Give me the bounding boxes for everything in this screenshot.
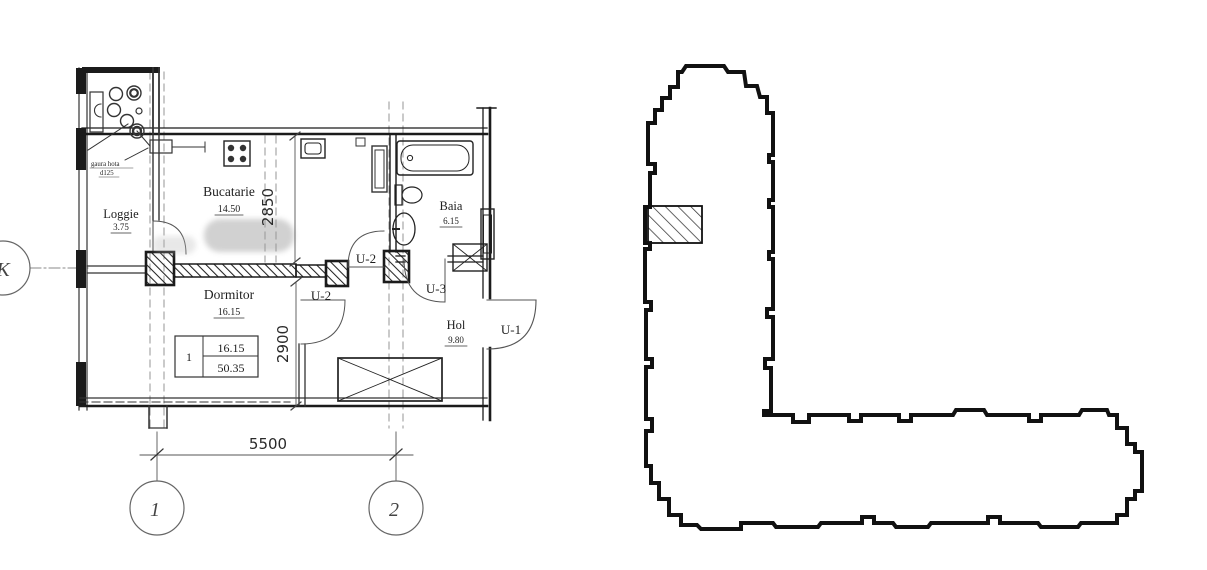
room-area-hol: 9.80 — [448, 335, 464, 345]
dim-kitchen-depth: 2850 — [259, 188, 277, 226]
building-outline — [645, 66, 1142, 529]
room-label-baia: Baia — [440, 199, 463, 213]
table-total-area: 50.35 — [218, 361, 245, 375]
dim-overall-width: 5500 — [249, 435, 287, 453]
left-wall — [76, 68, 87, 410]
door-u2-bedroom — [301, 300, 345, 344]
vent-shaft-block — [82, 67, 205, 160]
erased-watermark-blob — [204, 219, 294, 252]
dim-bedroom-depth: 2900 — [274, 325, 292, 363]
erased-watermark-blob-2 — [152, 236, 196, 254]
door-label-u2-upper: U-2 — [356, 251, 376, 266]
room-area-bucatarie: 14.50 — [218, 204, 241, 215]
note-line1: gaura hota — [91, 161, 120, 168]
wardrobe-icon — [338, 358, 442, 401]
area-table: 1 16.15 50.35 — [175, 336, 258, 377]
dim-2900: 2900 — [274, 278, 301, 410]
axis-1-label: 1 — [150, 499, 160, 521]
room-label-hol: Hol — [447, 318, 466, 332]
apartment-plan-drawing: gaura hota d125 — [0, 0, 1207, 570]
apartment-location-marker — [648, 206, 702, 243]
note-line2: d125 — [100, 170, 114, 177]
washing-machine-icon — [453, 244, 487, 271]
kitchen-sink-icon — [301, 139, 325, 158]
room-area-baia: 6.15 — [443, 216, 459, 226]
bathtub-icon — [397, 141, 473, 175]
door-label-u2-lower: U-2 — [311, 288, 331, 303]
dim-5500: 5500 — [140, 432, 413, 481]
grid-bubble-2: 2 — [369, 481, 423, 535]
page: gaura hota d125 — [0, 0, 1207, 570]
axis-k-label: K — [0, 259, 11, 281]
bottom-wall — [80, 398, 487, 428]
table-apartment-number: 1 — [186, 350, 192, 364]
grid-bubble-1: 1 — [130, 481, 184, 535]
stove-icon — [224, 141, 250, 166]
washbasin-icon — [393, 213, 415, 245]
toilet-icon — [395, 185, 422, 205]
floor-plan: gaura hota d125 — [0, 67, 536, 535]
table-room-area: 16.15 — [218, 341, 245, 355]
door-label-u3: U-3 — [426, 281, 446, 296]
top-wall — [82, 128, 487, 134]
grid-bubble-k: K — [0, 241, 30, 295]
room-label-bucatarie: Bucatarie — [203, 184, 255, 199]
room-area-loggie: 3.75 — [113, 222, 129, 232]
bath-walls — [390, 134, 483, 262]
room-area-dormitor: 16.15 — [218, 307, 241, 318]
room-label-loggie: Loggie — [103, 207, 139, 221]
room-label-dormitor: Dormitor — [204, 287, 255, 302]
hood-note: gaura hota d125 — [90, 161, 133, 177]
axis-2-label: 2 — [389, 499, 399, 521]
door-label-u1: U-1 — [501, 322, 521, 337]
hall-wall — [299, 344, 305, 406]
heater-column-icon — [356, 138, 387, 192]
building-footprint-path — [645, 66, 1142, 529]
